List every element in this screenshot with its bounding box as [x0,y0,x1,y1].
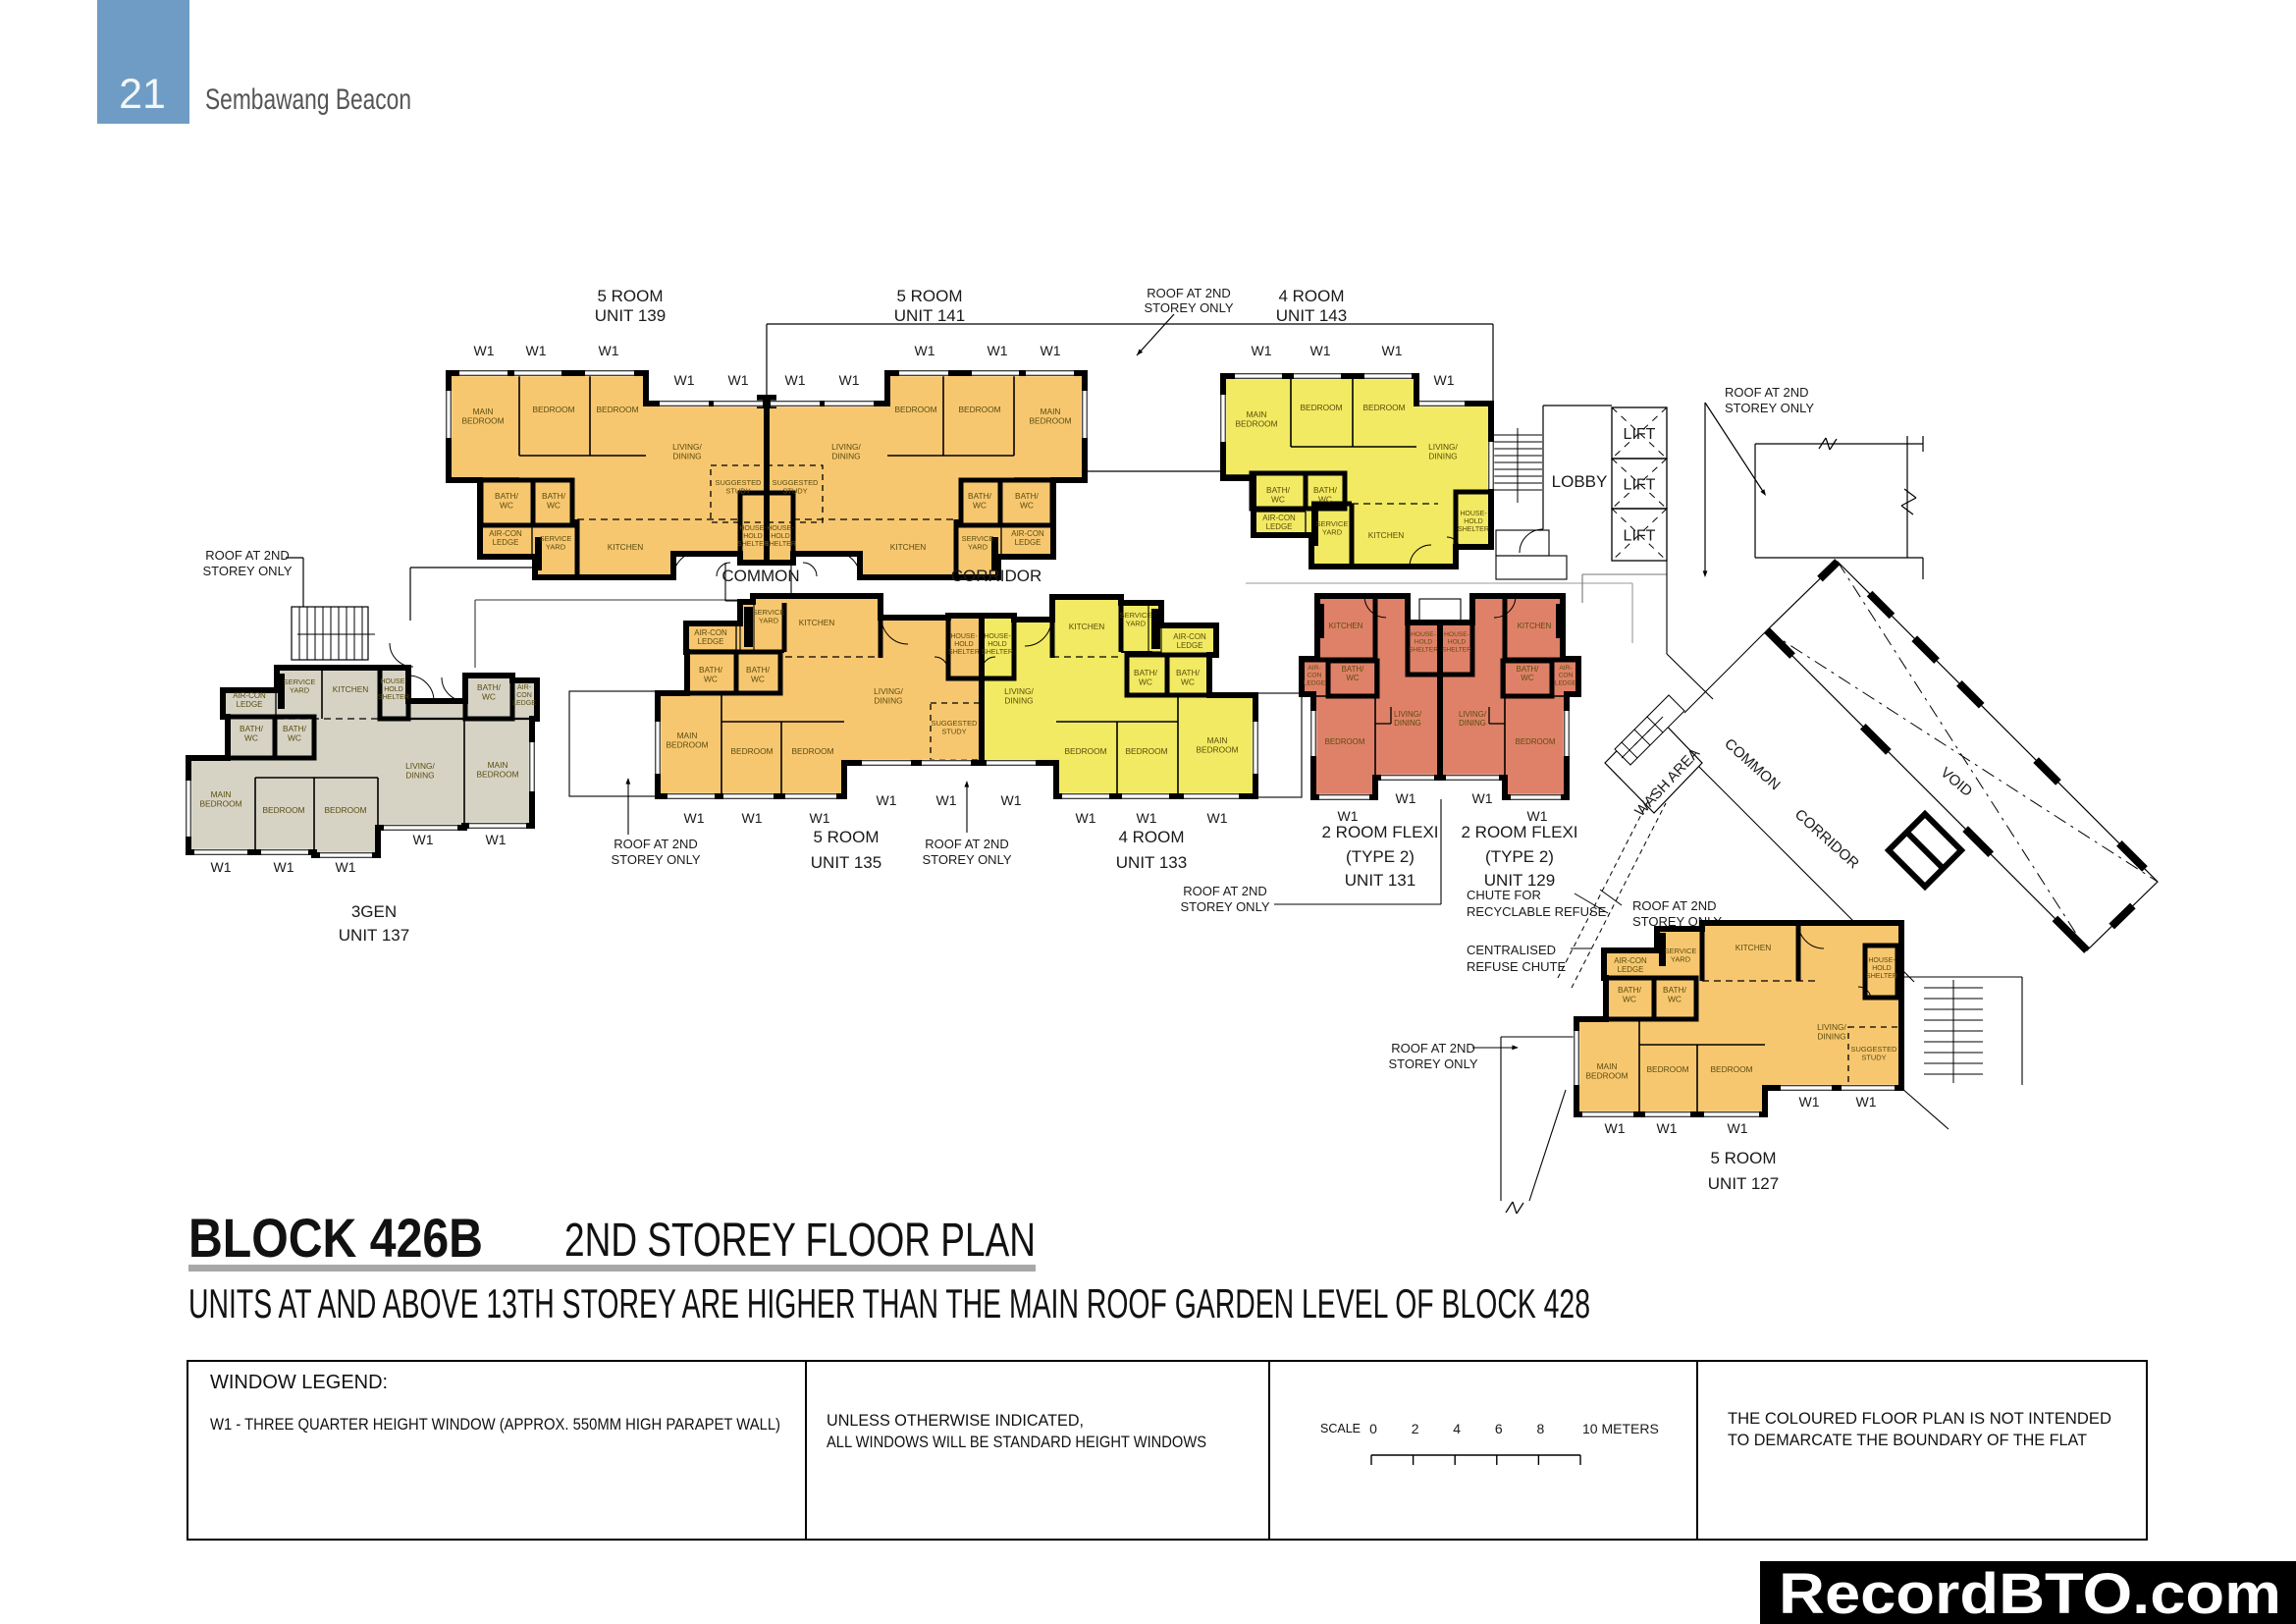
svg-text:2 ROOM FLEXI: 2 ROOM FLEXI [1461,823,1577,841]
svg-text:LIVING/DINING: LIVING/DINING [831,442,861,460]
svg-text:W1: W1 [1382,343,1403,358]
svg-text:UNITS AT AND ABOVE 13TH STOREY: UNITS AT AND ABOVE 13TH STOREY ARE HIGHE… [188,1280,1590,1326]
svg-text:AIR-CONLEDGE: AIR-CONLEDGE [489,529,522,547]
svg-text:BEDROOM: BEDROOM [1300,403,1342,412]
svg-text:ROOF AT 2NDSTOREY ONLY: ROOF AT 2NDSTOREY ONLY [1388,1041,1477,1071]
svg-text:UNIT 129: UNIT 129 [1484,871,1555,890]
svg-text:AIR-CONLEDGE: AIR-CONLEDGE [694,628,727,646]
svg-text:UNIT 141: UNIT 141 [894,306,965,325]
svg-text:5 ROOM: 5 ROOM [896,287,962,305]
svg-text:BEDROOM: BEDROOM [1362,403,1405,412]
svg-text:AIR-CONLEDGE: AIR-CONLEDGE [1614,956,1647,974]
svg-text:4: 4 [1453,1421,1461,1436]
svg-text:ROOF AT 2NDSTOREY ONLY: ROOF AT 2NDSTOREY ONLY [611,837,700,867]
svg-text:BEDROOM: BEDROOM [324,805,366,815]
svg-text:21: 21 [119,71,166,118]
svg-text:LOBBY: LOBBY [1552,472,1608,491]
svg-text:W1: W1 [1657,1120,1678,1136]
svg-text:W1: W1 [1310,343,1331,358]
svg-text:5 ROOM: 5 ROOM [1710,1149,1776,1167]
svg-text:COMMON: COMMON [721,567,799,585]
svg-text:ROOF AT 2NDSTOREY ONLY: ROOF AT 2NDSTOREY ONLY [1180,884,1269,914]
svg-text:LIVING/DINING: LIVING/DINING [1428,442,1458,460]
svg-text:LIVING/DINING: LIVING/DINING [405,761,435,780]
svg-text:THE COLOURED FLOOR PLAN IS NOT: THE COLOURED FLOOR PLAN IS NOT INTENDED [1728,1409,2111,1428]
svg-text:KITCHEN: KITCHEN [1329,622,1363,630]
svg-text:W1: W1 [785,372,806,388]
svg-text:W1: W1 [211,859,232,875]
svg-text:UNIT 133: UNIT 133 [1116,853,1187,872]
svg-text:W1: W1 [1207,810,1228,826]
svg-text:LIVING/DINING: LIVING/DINING [874,686,903,705]
svg-text:UNIT 137: UNIT 137 [339,926,409,945]
svg-text:ALL WINDOWS WILL BE STANDARD H: ALL WINDOWS WILL BE STANDARD HEIGHT WIND… [827,1433,1206,1451]
svg-text:SCALE: SCALE [1320,1422,1361,1435]
svg-text:W1: W1 [1728,1120,1748,1136]
svg-text:ROOF AT 2NDSTOREY ONLY: ROOF AT 2NDSTOREY ONLY [1725,385,1814,415]
svg-text:W1: W1 [877,792,897,808]
svg-text:BEDROOM: BEDROOM [791,746,833,756]
svg-text:LIVING/DINING: LIVING/DINING [672,442,702,460]
svg-text:BEDROOM: BEDROOM [730,746,773,756]
svg-text:ROOF AT 2NDSTOREY ONLY: ROOF AT 2NDSTOREY ONLY [1144,286,1233,315]
svg-text:W1: W1 [526,343,547,358]
svg-text:W1: W1 [1041,343,1061,358]
svg-text:W1: W1 [1252,343,1272,358]
svg-text:W1: W1 [599,343,619,358]
svg-text:LIVING/DINING: LIVING/DINING [1817,1022,1846,1041]
svg-text:W1: W1 [274,859,294,875]
svg-text:KITCHEN: KITCHEN [1368,530,1405,540]
svg-text:8: 8 [1537,1421,1545,1436]
svg-text:KITCHEN: KITCHEN [1069,622,1105,631]
svg-text:TO DEMARCATE THE BOUNDARY OF T: TO DEMARCATE THE BOUNDARY OF THE FLAT [1728,1431,2087,1449]
svg-text:W1: W1 [1076,810,1096,826]
svg-text:BEDROOM: BEDROOM [958,405,1000,414]
svg-text:BEDROOM: BEDROOM [1064,746,1106,756]
svg-text:W1: W1 [1856,1094,1877,1110]
svg-text:UNIT 131: UNIT 131 [1345,871,1415,890]
svg-text:3GEN: 3GEN [351,902,397,921]
svg-text:W1: W1 [1605,1120,1626,1136]
svg-text:AIR-CONLEDGE: AIR-CONLEDGE [1173,632,1206,650]
svg-text:5 ROOM: 5 ROOM [813,828,879,846]
svg-text:W1: W1 [936,792,957,808]
svg-text:UNIT 143: UNIT 143 [1276,306,1347,325]
svg-text:BEDROOM: BEDROOM [532,405,574,414]
svg-text:W1: W1 [336,859,356,875]
svg-text:BEDROOM: BEDROOM [894,405,936,414]
svg-text:4 ROOM: 4 ROOM [1118,828,1184,846]
svg-text:CORRIDOR: CORRIDOR [951,567,1042,585]
svg-text:ROOF AT 2NDSTOREY ONLY: ROOF AT 2NDSTOREY ONLY [202,548,292,578]
svg-text:W1: W1 [915,343,935,358]
svg-text:UNIT 127: UNIT 127 [1708,1174,1779,1193]
svg-text:AIR-CONLEDGE: AIR-CONLEDGE [1011,529,1044,547]
svg-text:WINDOW LEGEND:: WINDOW LEGEND: [210,1372,388,1393]
svg-text:2ND STOREY FLOOR PLAN: 2ND STOREY FLOOR PLAN [564,1215,1036,1267]
svg-text:W1: W1 [1396,790,1416,806]
svg-text:UNIT 139: UNIT 139 [595,306,666,325]
svg-text:W1: W1 [1434,372,1455,388]
svg-text:BEDROOM: BEDROOM [1516,737,1556,746]
svg-text:W1: W1 [486,832,507,847]
svg-text:AIR-CONLEDGE: AIR-CONLEDGE [1262,514,1296,531]
svg-text:ROOF AT 2NDSTOREY ONLY: ROOF AT 2NDSTOREY ONLY [922,837,1011,867]
svg-text:KITCHEN: KITCHEN [799,618,835,627]
svg-text:10 METERS: 10 METERS [1582,1421,1659,1436]
svg-text:LIFT: LIFT [1624,426,1656,443]
svg-text:BEDROOM: BEDROOM [1646,1064,1688,1074]
svg-text:KITCHEN: KITCHEN [333,684,369,694]
svg-text:KITCHEN: KITCHEN [890,542,927,552]
svg-text:W1: W1 [810,810,830,826]
svg-text:W1: W1 [728,372,749,388]
svg-text:LIVING/DINING: LIVING/DINING [1459,710,1487,728]
svg-text:LIVING/DINING: LIVING/DINING [1004,686,1034,705]
svg-text:AIR-CONLEDGE: AIR-CONLEDGE [233,691,266,709]
svg-text:0: 0 [1369,1421,1377,1436]
svg-text:RecordBTO.com: RecordBTO.com [1779,1562,2281,1624]
svg-text:KITCHEN: KITCHEN [1735,943,1772,952]
svg-text:6: 6 [1495,1421,1503,1436]
svg-text:BEDROOM: BEDROOM [262,805,304,815]
svg-text:W1: W1 [1799,1094,1820,1110]
svg-text:BEDROOM: BEDROOM [1125,746,1167,756]
svg-text:BEDROOM: BEDROOM [596,405,638,414]
svg-text:W1: W1 [474,343,495,358]
svg-text:W1: W1 [988,343,1008,358]
svg-text:BEDROOM: BEDROOM [1325,737,1365,746]
svg-text:BLOCK 426B: BLOCK 426B [188,1207,483,1269]
svg-text:(TYPE 2): (TYPE 2) [1346,847,1415,866]
svg-text:KITCHEN: KITCHEN [1518,622,1552,630]
svg-text:LIVING/DINING: LIVING/DINING [1394,710,1422,728]
svg-text:UNIT 135: UNIT 135 [811,853,881,872]
svg-text:W1: W1 [684,810,705,826]
svg-text:2 ROOM FLEXI: 2 ROOM FLEXI [1321,823,1438,841]
svg-text:W1: W1 [839,372,860,388]
svg-text:4 ROOM: 4 ROOM [1278,287,1344,305]
svg-text:5 ROOM: 5 ROOM [597,287,663,305]
svg-text:W1: W1 [1472,790,1493,806]
svg-text:W1: W1 [1137,810,1157,826]
svg-text:UNLESS OTHERWISE INDICATED,: UNLESS OTHERWISE INDICATED, [827,1411,1084,1430]
svg-text:LIFT: LIFT [1624,477,1656,494]
svg-text:W1: W1 [742,810,763,826]
svg-text:W1: W1 [1001,792,1022,808]
svg-text:BEDROOM: BEDROOM [1710,1064,1752,1074]
svg-text:KITCHEN: KITCHEN [608,542,644,552]
svg-text:W1: W1 [1527,808,1548,824]
svg-text:(TYPE 2): (TYPE 2) [1485,847,1554,866]
svg-text:W1: W1 [674,372,695,388]
svg-text:W1: W1 [413,832,434,847]
svg-text:W1 - THREE QUARTER HEIGHT WIND: W1 - THREE QUARTER HEIGHT WINDOW (APPROX… [210,1415,780,1434]
svg-text:LIFT: LIFT [1624,528,1656,545]
svg-text:2: 2 [1412,1421,1419,1436]
svg-text:Sembawang Beacon: Sembawang Beacon [205,83,411,116]
svg-text:W1: W1 [1338,808,1359,824]
